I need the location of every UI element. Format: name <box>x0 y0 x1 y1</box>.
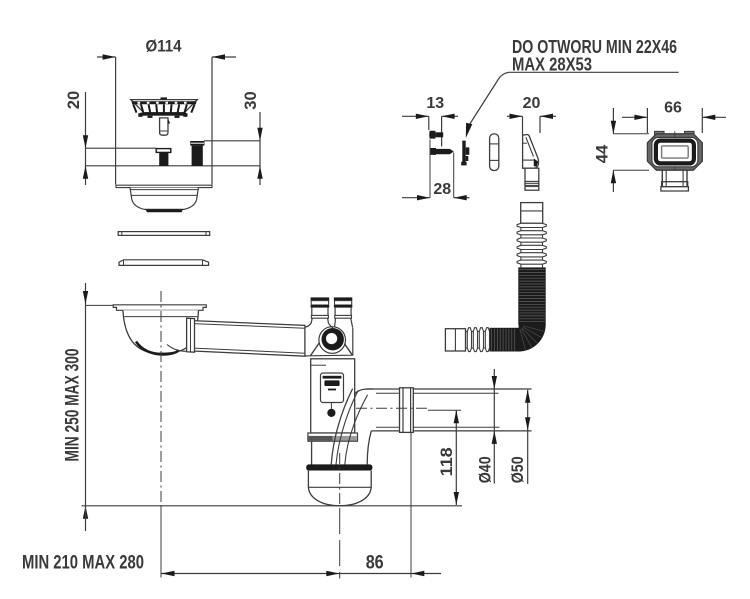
svg-text:Ø40: Ø40 <box>476 456 494 483</box>
svg-text:30: 30 <box>242 91 260 109</box>
svg-text:66: 66 <box>664 100 682 117</box>
svg-text:13: 13 <box>426 95 444 112</box>
svg-text:Ø114: Ø114 <box>146 38 183 56</box>
svg-text:86: 86 <box>366 552 384 573</box>
svg-text:118: 118 <box>437 447 456 476</box>
svg-text:Ø50: Ø50 <box>509 456 527 483</box>
svg-text:44: 44 <box>593 144 611 163</box>
svg-text:28: 28 <box>433 181 451 198</box>
svg-text:MIN 250 MAX 300: MIN 250 MAX 300 <box>63 349 84 462</box>
svg-text:MIN 210 MAX 280: MIN 210 MAX 280 <box>22 552 144 573</box>
svg-text:20: 20 <box>523 95 541 112</box>
svg-text:MAX 28X53: MAX 28X53 <box>512 55 592 75</box>
svg-text:20: 20 <box>65 91 83 109</box>
